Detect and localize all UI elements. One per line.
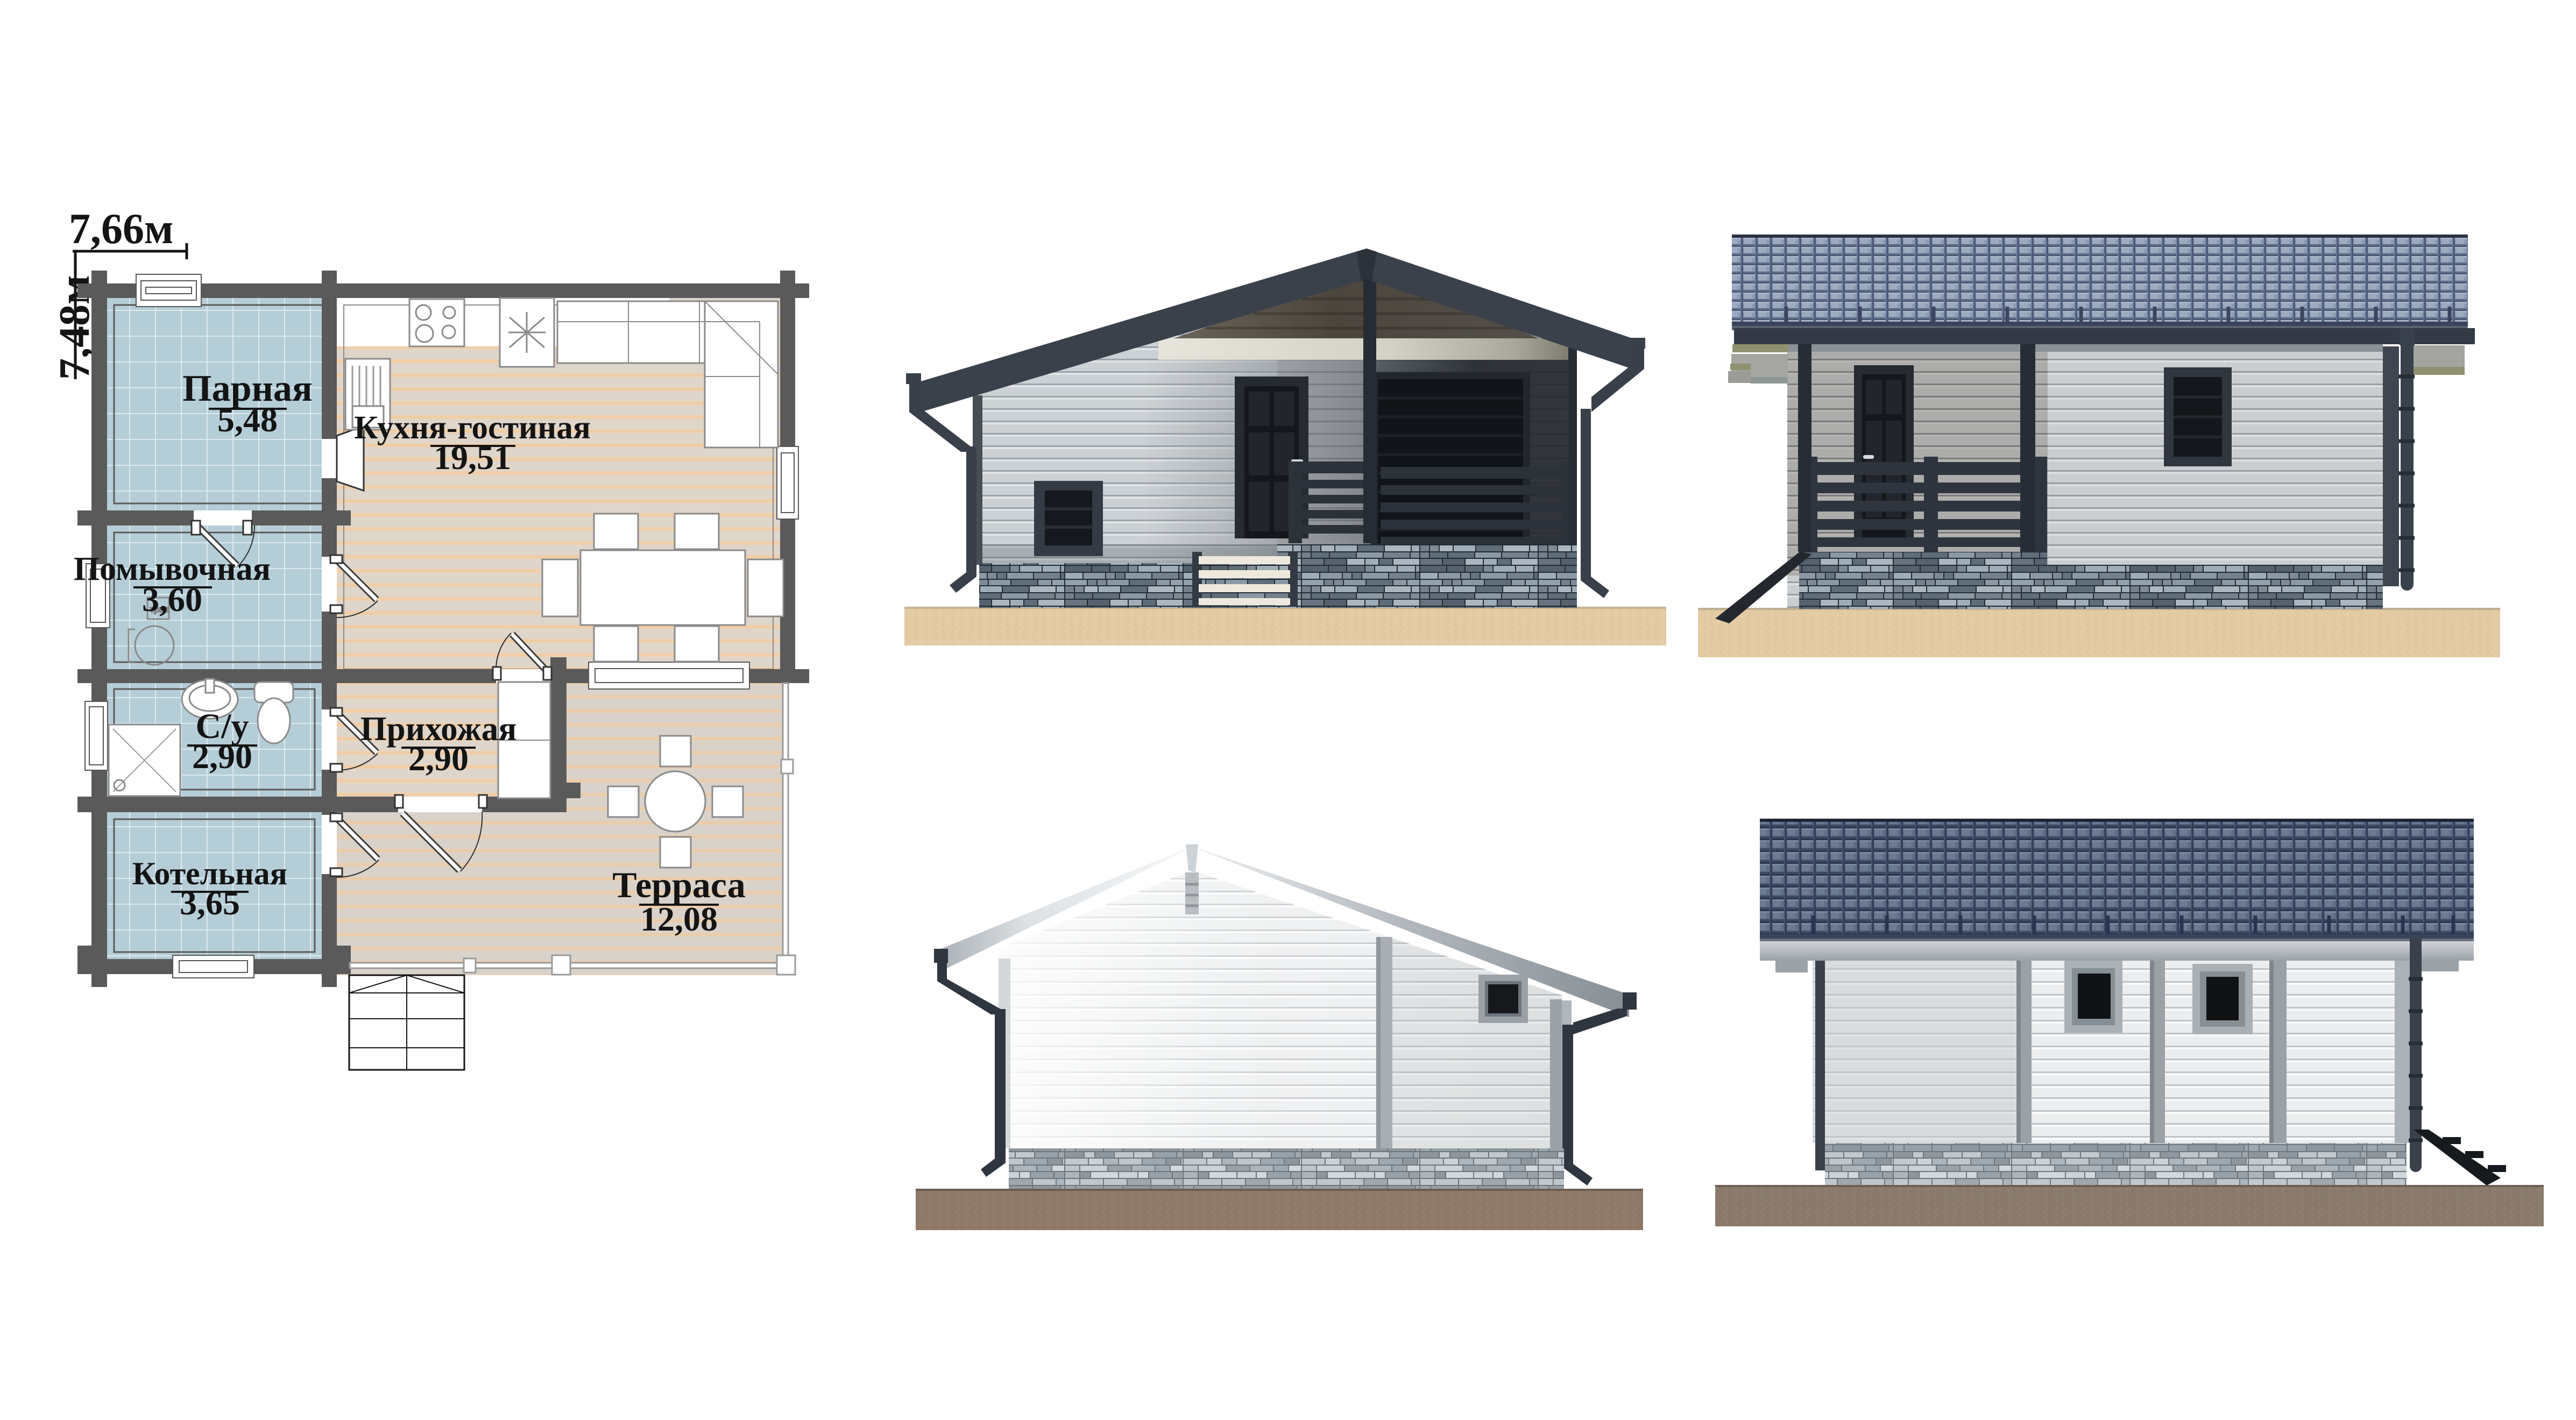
svg-text:5,48: 5,48 xyxy=(217,401,278,439)
svg-text:19,51: 19,51 xyxy=(434,438,511,477)
svg-text:3,60: 3,60 xyxy=(142,580,202,619)
svg-text:Терраса: Терраса xyxy=(612,864,746,905)
svg-text:3,65: 3,65 xyxy=(180,884,240,922)
svg-text:2,90: 2,90 xyxy=(408,740,469,778)
svg-text:7,66м: 7,66м xyxy=(69,205,174,253)
svg-text:2,90: 2,90 xyxy=(192,737,252,776)
